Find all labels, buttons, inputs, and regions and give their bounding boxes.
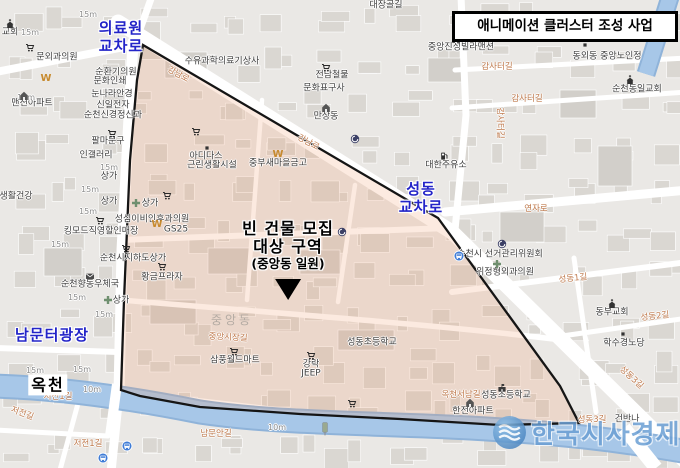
- map-poi-label: JEEP: [301, 370, 320, 379]
- map-poi-label: 수유과학의료기상사: [185, 58, 260, 67]
- hospital-cross-icon: [492, 259, 502, 269]
- house-icon: [465, 398, 475, 408]
- road-name-label: 연자로: [524, 205, 547, 214]
- dot-marker-icon: [202, 143, 212, 153]
- road-name-label: 성동1길: [558, 273, 588, 284]
- road-width-label: 10m: [83, 386, 101, 394]
- map-poi-label: 교회: [2, 29, 19, 38]
- map-poi-label: 삼풍월드마트: [210, 357, 260, 366]
- road-name-label: 성동2길: [640, 311, 670, 322]
- saemaeul-w-icon: W: [152, 218, 163, 229]
- map-poi-label: 상가: [113, 297, 130, 306]
- cart-icon: [162, 191, 172, 201]
- map-poi-label: 문화인쇄: [93, 78, 126, 87]
- map-poi-label: 문외과의원: [36, 54, 77, 63]
- road-name-label: 남문안길: [200, 430, 231, 439]
- road-width-label: 15m: [95, 311, 113, 319]
- nammunteo-plaza-label: 남문터광장: [15, 326, 89, 344]
- map-poi-label: 문화표구사: [303, 85, 344, 94]
- church-icon: [607, 299, 617, 309]
- dot-marker-icon: [618, 329, 628, 339]
- svg-text:W: W: [152, 219, 163, 229]
- road-width-label: 15m: [79, 208, 97, 216]
- map-poi-label: 상가: [101, 198, 118, 207]
- map-poi-label: GS25: [164, 226, 188, 235]
- road-name-label: 중앙시장길: [208, 333, 248, 344]
- road-name-label: 강남로: [166, 66, 191, 85]
- svg-text:W: W: [41, 73, 52, 83]
- bus-stop-icon: [122, 441, 133, 452]
- target-area-line3: (중앙동 일원): [242, 256, 334, 272]
- map-poi-label: 한전아파트: [452, 408, 493, 417]
- map-poi-label: 황금프라자: [141, 274, 182, 283]
- map-poi-label: 눈나라안경: [91, 91, 132, 100]
- seongdong-crossing-label: 성동 교차로: [399, 180, 443, 216]
- cart-icon: [306, 351, 316, 361]
- watermark-logo-icon: [492, 415, 527, 450]
- bus-stop-icon: [454, 251, 465, 262]
- hospital-cross-icon: [103, 295, 113, 305]
- map-poi-label: 학수경노당: [603, 340, 644, 349]
- watermark: 한국시사경제: [492, 414, 680, 451]
- medical-center-crossing-label: 의료원 교차로: [99, 19, 143, 55]
- project-title-box: 애니메이션 클러스터 조성 사업: [452, 11, 678, 42]
- target-area-line2: 대상 구역: [242, 238, 334, 256]
- map-poi-label: 중부새마을금고: [249, 160, 307, 169]
- map-poi-label: 만상동: [314, 113, 339, 122]
- map-poi-label: 순천향동우체국: [61, 281, 119, 290]
- post-office-icon: [85, 271, 95, 281]
- map-poi-label: 순천신경정신과: [84, 112, 142, 121]
- road-width-label: 15m: [51, 241, 69, 249]
- map-poi-label: 동외동 중앙노인정: [572, 53, 641, 62]
- cart-icon: [25, 43, 35, 53]
- road-name-label: 감사터길: [481, 63, 512, 72]
- church-icon: [625, 75, 635, 85]
- cart-icon: [321, 63, 331, 73]
- cart-icon: [121, 244, 131, 254]
- gov-building-icon: [497, 239, 507, 249]
- map-poi-label: 근린생활시설: [187, 162, 237, 171]
- hospital-cross-icon: [131, 198, 141, 208]
- house-icon: [19, 91, 29, 101]
- gas-station-icon: [439, 151, 449, 161]
- school-icon: [497, 383, 507, 393]
- target-area-annotation: 빈 건물 모집 대상 구역 (중앙동 일원): [242, 220, 334, 300]
- map-poi-label: 중앙진성빌라맨션: [428, 44, 494, 53]
- road-width-label: 15m: [79, 11, 97, 19]
- okcheon-stream-label: 옥천: [28, 374, 67, 395]
- map-poi-label: 성동초등학교: [347, 339, 397, 348]
- map-poi-label: 대장골길: [369, 2, 402, 11]
- bridge-sign-icon: [321, 422, 329, 436]
- saemaeul-w-icon: W: [273, 148, 284, 159]
- road-width-label: 10m: [268, 424, 286, 432]
- road-width-label: 15m: [73, 366, 91, 374]
- house-icon: [321, 103, 331, 113]
- target-area-pointer-icon: [275, 279, 301, 300]
- cart-icon: [107, 129, 117, 139]
- cart-icon: [157, 262, 167, 272]
- road-width-label: 15m: [100, 164, 118, 172]
- map-poi-label: 순천동일교회: [612, 86, 662, 95]
- map-poi-label: 동부교회: [595, 309, 628, 318]
- road-name-label: 성동3길: [617, 365, 644, 391]
- road-name-label: 저전1길: [74, 440, 103, 449]
- road-width-label: 15m: [68, 294, 86, 302]
- district-label: 중앙동: [211, 314, 253, 326]
- gov-building-icon: [337, 227, 347, 237]
- road-name-label: 감사터길: [511, 95, 542, 104]
- road-name-label: 강남로: [296, 134, 321, 153]
- road-width-label: 15m: [21, 29, 39, 37]
- map-poi-label: 상가: [142, 200, 159, 209]
- map-screenshot: 교회문외과의원맨션아파트순환기의원문화인쇄눈나라안경신일전자순천신경정신과수유과…: [0, 0, 680, 468]
- gov-building-icon: [350, 134, 360, 144]
- church-icon: [5, 19, 15, 29]
- map-poi-label: 킹모드직영할인매장: [64, 228, 139, 237]
- bus-stop-icon: [98, 453, 109, 464]
- road-name-label: 저전길: [10, 406, 35, 422]
- map-poi-label: 생활건강: [0, 193, 33, 202]
- road-name-label: 감사터길: [495, 107, 504, 138]
- svg-text:W: W: [273, 149, 284, 159]
- map-poi-label: 위정형외과의원: [476, 269, 534, 278]
- cart-icon: [95, 216, 105, 226]
- saemaeul-w-icon: W: [41, 72, 52, 83]
- map-poi-label: 대한주유소: [425, 162, 466, 171]
- cart-icon: [347, 399, 357, 409]
- map-poi-label: 신일전자: [96, 102, 129, 111]
- target-area-line1: 빈 건물 모집: [242, 220, 334, 238]
- cart-icon: [191, 127, 201, 137]
- cart-icon: [229, 347, 239, 357]
- map-poi-label: 인갤러리: [79, 152, 112, 161]
- label-layer: 교회문외과의원맨션아파트순환기의원문화인쇄눈나라안경신일전자순천신경정신과수유과…: [0, 0, 680, 468]
- watermark-text: 한국시사경제: [531, 414, 680, 451]
- road-width-label: 15m: [81, 186, 99, 194]
- map-poi-label: 상가: [101, 173, 118, 182]
